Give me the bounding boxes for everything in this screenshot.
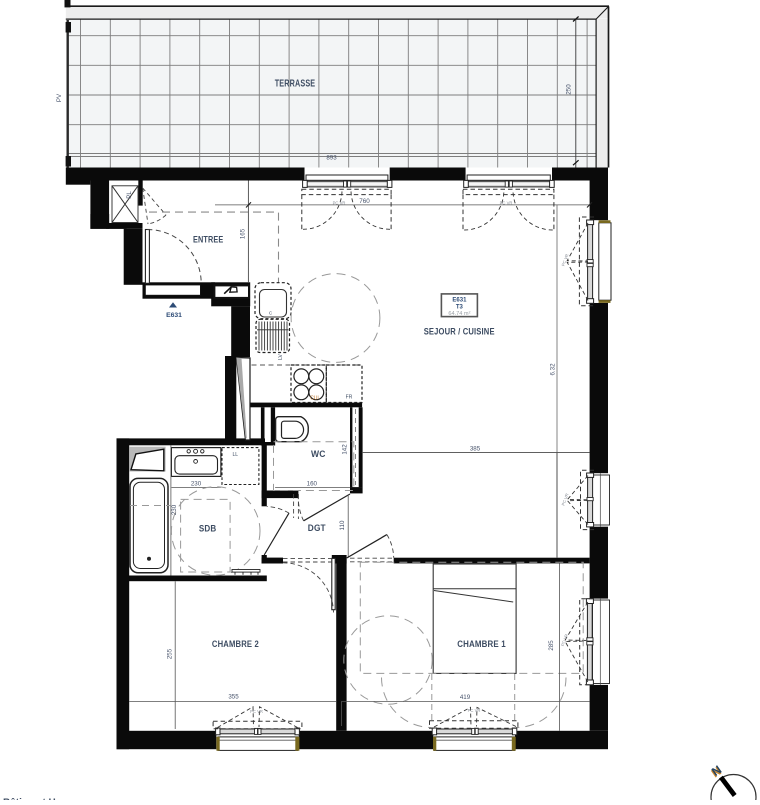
svg-text:PC VR: PC VR	[468, 708, 481, 713]
svg-text:385: 385	[470, 446, 481, 453]
svg-text:SEJOUR / CUISINE: SEJOUR / CUISINE	[424, 327, 495, 337]
svg-text:142: 142	[342, 444, 349, 455]
svg-text:T3: T3	[456, 305, 464, 311]
svg-text:LV: LV	[278, 353, 284, 359]
svg-text:250: 250	[566, 84, 573, 95]
svg-text:PC VR: PC VR	[333, 201, 346, 206]
svg-text:WC: WC	[311, 449, 326, 459]
svg-text:64.74 m²: 64.74 m²	[448, 311, 470, 317]
svg-text:285: 285	[548, 640, 555, 651]
svg-text:165: 165	[239, 228, 246, 239]
svg-text:FR: FR	[346, 395, 353, 401]
svg-text:DGT: DGT	[308, 523, 326, 533]
svg-text:E631: E631	[452, 298, 467, 304]
svg-text:6.32: 6.32	[550, 363, 557, 376]
svg-text:419: 419	[460, 694, 471, 701]
svg-text:CUI: CUI	[310, 396, 319, 402]
svg-text:760: 760	[359, 198, 370, 205]
svg-text:TERRASSE: TERRASSE	[275, 79, 316, 90]
svg-text:E631: E631	[166, 312, 182, 319]
svg-text:PC VR: PC VR	[500, 201, 513, 206]
svg-text:PL: PL	[126, 191, 133, 199]
svg-text:CHAMBRE 2: CHAMBRE 2	[212, 639, 259, 649]
svg-text:255: 255	[166, 648, 173, 659]
svg-text:ENTREE: ENTREE	[193, 235, 224, 245]
svg-text:PV: PV	[56, 93, 63, 102]
svg-text:110: 110	[339, 520, 346, 530]
svg-text:355: 355	[228, 694, 239, 701]
svg-text:PC VR: PC VR	[250, 709, 263, 714]
svg-text:SDB: SDB	[199, 524, 217, 534]
svg-text:893: 893	[326, 155, 337, 162]
svg-text:230: 230	[191, 480, 202, 487]
svg-text:LL: LL	[233, 452, 239, 458]
svg-text:CHAMBRE 1: CHAMBRE 1	[457, 639, 506, 649]
svg-text:160: 160	[307, 480, 318, 487]
